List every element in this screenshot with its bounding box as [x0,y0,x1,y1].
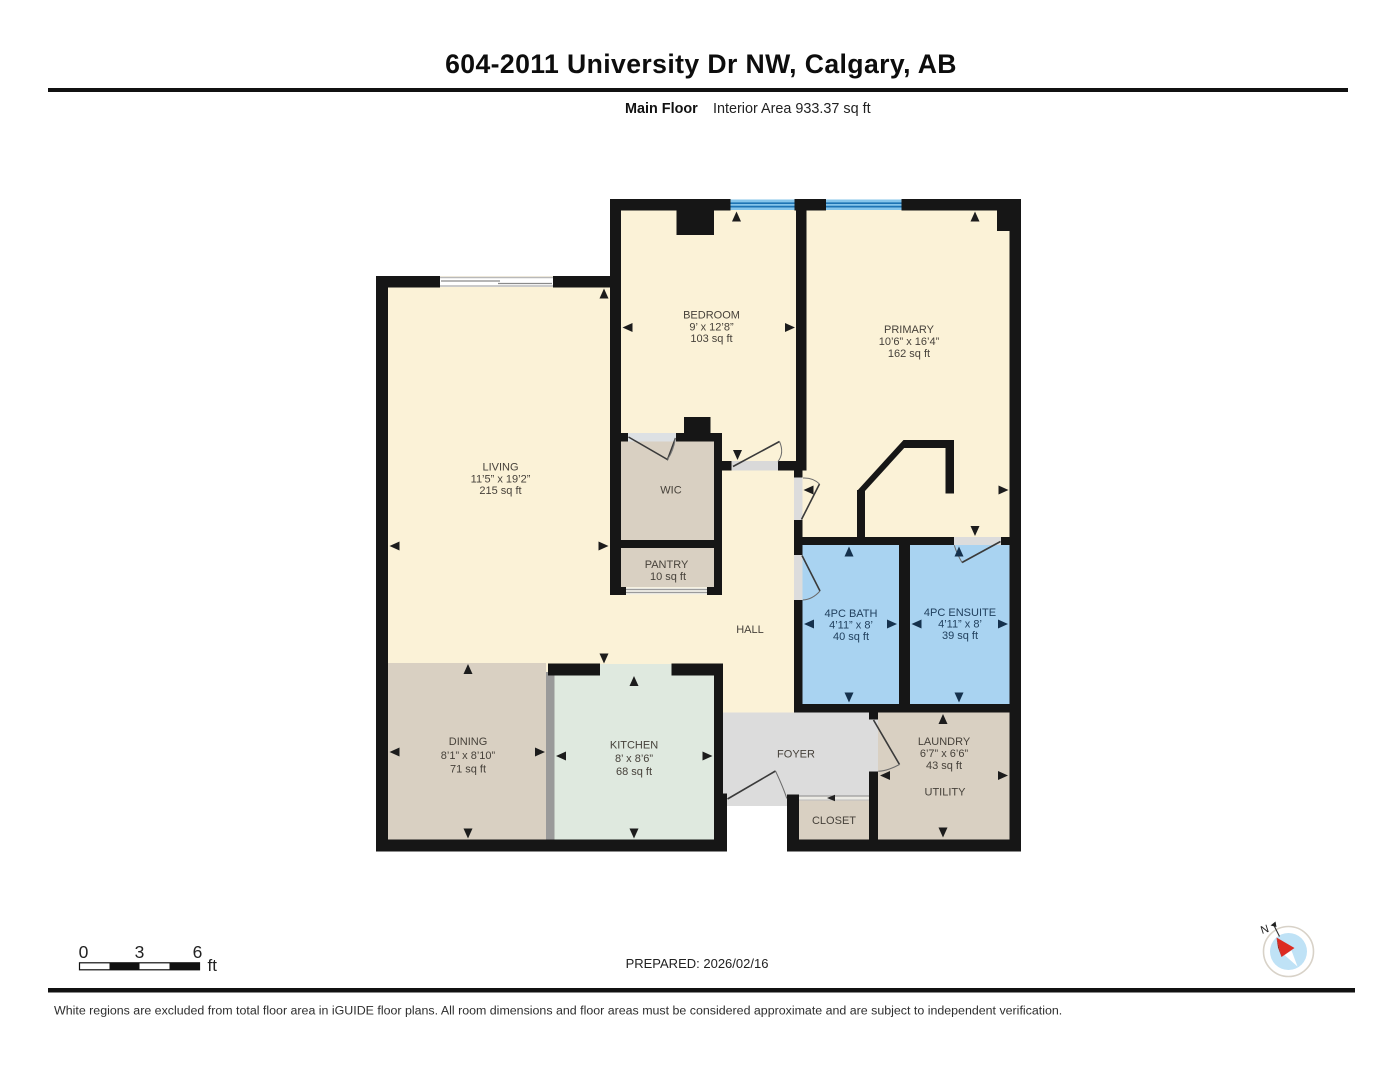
svg-text:71 sq ft: 71 sq ft [450,764,486,776]
svg-text:103 sq ft: 103 sq ft [690,333,732,345]
svg-text:4’11” x 8’: 4’11” x 8’ [938,619,982,631]
svg-text:WIC: WIC [660,485,681,497]
svg-text:6’7” x 6’6”: 6’7” x 6’6” [920,748,969,760]
svg-text:604-2011 University Dr NW, Cal: 604-2011 University Dr NW, Calgary, AB [445,49,957,79]
svg-text:4PC BATH: 4PC BATH [825,608,878,620]
svg-text:215 sq ft: 215 sq ft [479,485,521,497]
svg-text:68 sq ft: 68 sq ft [616,766,652,778]
svg-text:11’5” x 19’2”: 11’5” x 19’2” [471,474,531,486]
svg-text:8’1” x 8’10”: 8’1” x 8’10” [441,750,496,762]
svg-text:40 sq ft: 40 sq ft [833,631,869,643]
svg-text:KITCHEN: KITCHEN [610,740,658,752]
svg-text:DINING: DINING [449,736,488,748]
svg-text:BEDROOM: BEDROOM [683,310,740,322]
svg-text:UTILITY: UTILITY [925,787,967,799]
svg-text:FOYER: FOYER [777,749,815,761]
svg-text:White regions are excluded fro: White regions are excluded from total fl… [54,1004,1062,1018]
svg-text:0: 0 [79,942,89,962]
svg-text:6: 6 [193,942,203,962]
svg-text:4’11” x 8’: 4’11” x 8’ [829,620,873,632]
svg-text:CLOSET: CLOSET [812,815,856,827]
svg-text:10’6” x 16’4”: 10’6” x 16’4” [879,336,940,348]
svg-text:43 sq ft: 43 sq ft [926,760,962,772]
svg-text:Main Floor: Main Floor [625,101,698,117]
svg-text:LAUNDRY: LAUNDRY [918,736,971,748]
svg-text:162 sq ft: 162 sq ft [888,348,930,360]
svg-text:10 sq ft: 10 sq ft [650,571,686,583]
svg-text:39 sq ft: 39 sq ft [942,630,978,642]
svg-text:PRIMARY: PRIMARY [884,324,935,336]
svg-text:3: 3 [135,942,145,962]
svg-text:ft: ft [208,956,218,975]
svg-text:Interior Area 933.37 sq ft: Interior Area 933.37 sq ft [713,101,871,117]
svg-text:HALL: HALL [736,624,764,636]
svg-text:PANTRY: PANTRY [645,559,689,571]
svg-text:PREPARED: 2026/02/16: PREPARED: 2026/02/16 [626,956,769,971]
svg-text:4PC ENSUITE: 4PC ENSUITE [924,607,996,619]
svg-text:9’ x 12’8”: 9’ x 12’8” [689,322,734,334]
svg-text:LIVING: LIVING [482,462,518,474]
svg-text:8’ x 8’6”: 8’ x 8’6” [615,753,653,765]
